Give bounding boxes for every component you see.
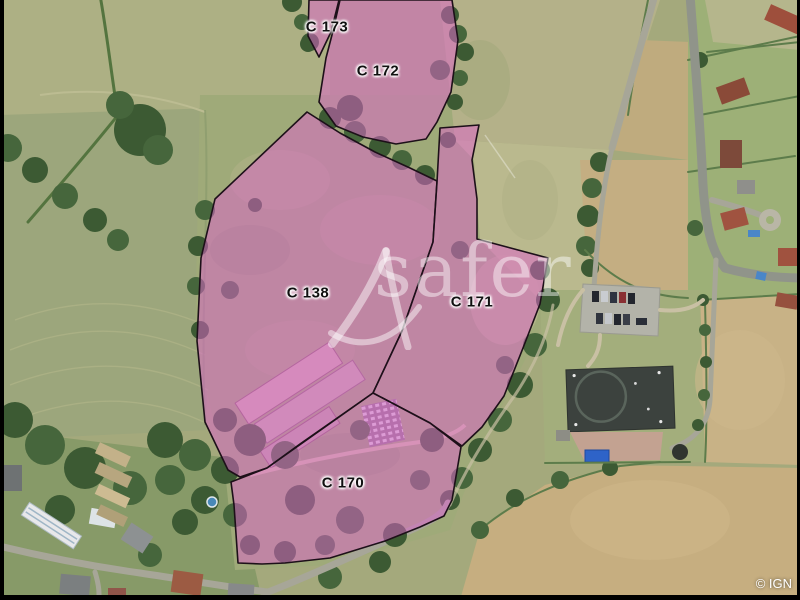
parcel-label-c173: C 173	[306, 19, 349, 36]
parcel-label-c170: C 170	[322, 475, 365, 492]
frame-bottom-edge	[0, 595, 800, 600]
ign-attribution: © IGN	[756, 576, 792, 591]
frame-left-edge	[0, 0, 4, 600]
parcel-label-c172: C 172	[357, 63, 400, 80]
aerial-basemap	[0, 0, 800, 600]
parcel-label-c138: C 138	[287, 285, 330, 302]
parcel-label-c171: C 171	[451, 294, 494, 311]
map-viewport[interactable]: C 173 C 172 C 138 C 171 C 170 safer © IG…	[0, 0, 800, 600]
